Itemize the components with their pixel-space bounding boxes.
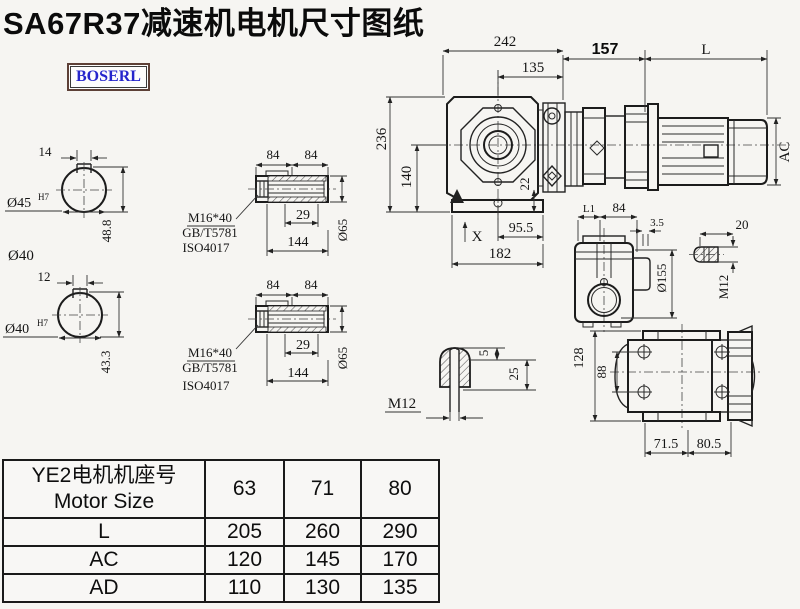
cell: 205 (205, 518, 284, 546)
dim-height: 236 (374, 127, 390, 150)
dim-foot1: 71.5 (654, 437, 679, 452)
dim-bore-fit: H7 (38, 192, 49, 202)
shaft-section-view-1: 14 48.8 Ø45 H7 Ø40 (5, 144, 128, 264)
dim-wall: 3.5 (650, 217, 664, 229)
page-title: SA67R37减速机电机尺寸图纸 (3, 0, 424, 43)
dim-seg2: 84 (305, 147, 319, 162)
table-header-cell: YE2电机机座号 Motor Size (3, 460, 205, 518)
dim-shaft-height: 48.8 (99, 220, 114, 243)
dim-key-width: 12 (38, 269, 51, 284)
label-std2: ISO4017 (183, 378, 230, 393)
dim-length: 144 (288, 235, 309, 250)
dim-84: 84 (613, 200, 627, 215)
table-header-row: YE2电机机座号 Motor Size 63 71 80 (3, 460, 439, 518)
cell: 130 (284, 574, 361, 602)
sleeve-view-2: 84 84 29 144 Ø65 M16*40 GB/T5781 ISO4017 (182, 277, 350, 393)
dim-center-height: 140 (399, 166, 415, 189)
cell: 260 (284, 518, 361, 546)
label-std2: ISO4017 (183, 240, 230, 255)
table-header-cn: YE2电机机座号 (4, 463, 204, 489)
sleeve-view-1: 84 84 29 144 Ø65 M16*40 GB/T5781 ISO4017 (182, 147, 350, 256)
dim-seg1: 84 (267, 277, 281, 292)
label-outer-dia: Ø40 (8, 248, 34, 264)
label-std1: GB/T5781 (182, 360, 238, 375)
cell: 170 (361, 546, 439, 574)
label-thread: M12 (388, 396, 416, 412)
motor-size-table: YE2电机机座号 Motor Size 63 71 80 L 205 260 2… (2, 459, 440, 603)
row-label: AD (3, 574, 205, 602)
dim-dia: Ø65 (335, 219, 350, 241)
shaft-section-view-2: 12 43.3 Ø40 H7 (3, 269, 124, 373)
dim-dia: Ø65 (335, 347, 350, 369)
dim-width: 242 (494, 34, 517, 50)
dim-depth: 29 (296, 338, 310, 353)
column-header: 63 (205, 460, 284, 518)
dim-height: 128 (572, 348, 587, 369)
table-row: AD 110 130 135 (3, 574, 439, 602)
dim-base: 182 (489, 246, 512, 262)
cell: 290 (361, 518, 439, 546)
table-row: L 205 260 290 (3, 518, 439, 546)
column-header: 71 (284, 460, 361, 518)
brand-logo-text: BOSERL (70, 66, 147, 88)
dim-seg1: 84 (267, 147, 281, 162)
cell: 135 (361, 574, 439, 602)
dim-mark-x: X (472, 229, 483, 245)
dim-foot2: 80.5 (697, 437, 722, 452)
cell: 120 (205, 546, 284, 574)
dim-bolt-spacing: 88 (594, 366, 609, 379)
row-label: L (3, 518, 205, 546)
cell: 145 (284, 546, 361, 574)
dim-stud: M12 (716, 275, 731, 300)
dim-depth: 29 (296, 208, 310, 223)
label-std1: GB/T5781 (182, 225, 238, 240)
dim-length: 144 (288, 366, 309, 381)
dim-l1: L1 (583, 203, 595, 215)
bolt-detail-view: 5 25 M12 (385, 348, 536, 421)
dim-adapter: 157 (592, 41, 619, 58)
side-view-gearbox: L1 84 3.5 20 M12 Ø155 (575, 200, 749, 332)
cell: 110 (205, 574, 284, 602)
column-header: 80 (361, 460, 439, 518)
dim-center-to-right: 135 (522, 60, 545, 76)
label-bolt: M16*40 (188, 345, 232, 360)
dim-flange-dia: Ø155 (654, 264, 669, 293)
dim-bore-fit: H7 (37, 318, 48, 328)
dim-key-width: 14 (39, 144, 53, 159)
drawing-sheet: 14 48.8 Ø45 H7 Ø40 12 43.3 Ø40 H7 (0, 0, 800, 609)
dim-length-label: L (701, 42, 710, 58)
bottom-view-gearbox: 88 128 71.5 80.5 (572, 324, 762, 457)
dim-bore: Ø45 (7, 196, 31, 211)
dim-seg2: 84 (305, 277, 319, 292)
dim-top: 5 (476, 350, 491, 357)
dim-bore: Ø40 (5, 322, 29, 337)
row-label: AC (3, 546, 205, 574)
dim-shaft-height: 43.3 (98, 351, 113, 374)
dim-depth: 25 (506, 368, 521, 381)
table-header-en: Motor Size (4, 489, 204, 515)
dim-flange: 22 (517, 178, 532, 191)
front-view-motor: 157 L AC (563, 41, 793, 190)
dim-thread-len: 20 (736, 217, 749, 232)
label-bolt: M16*40 (188, 210, 232, 225)
brand-logo: BOSERL (67, 63, 150, 91)
table-row: AC 120 145 170 (3, 546, 439, 574)
dim-diameter-label: AC (777, 142, 793, 163)
dim-foot-right: 95.5 (509, 221, 534, 236)
